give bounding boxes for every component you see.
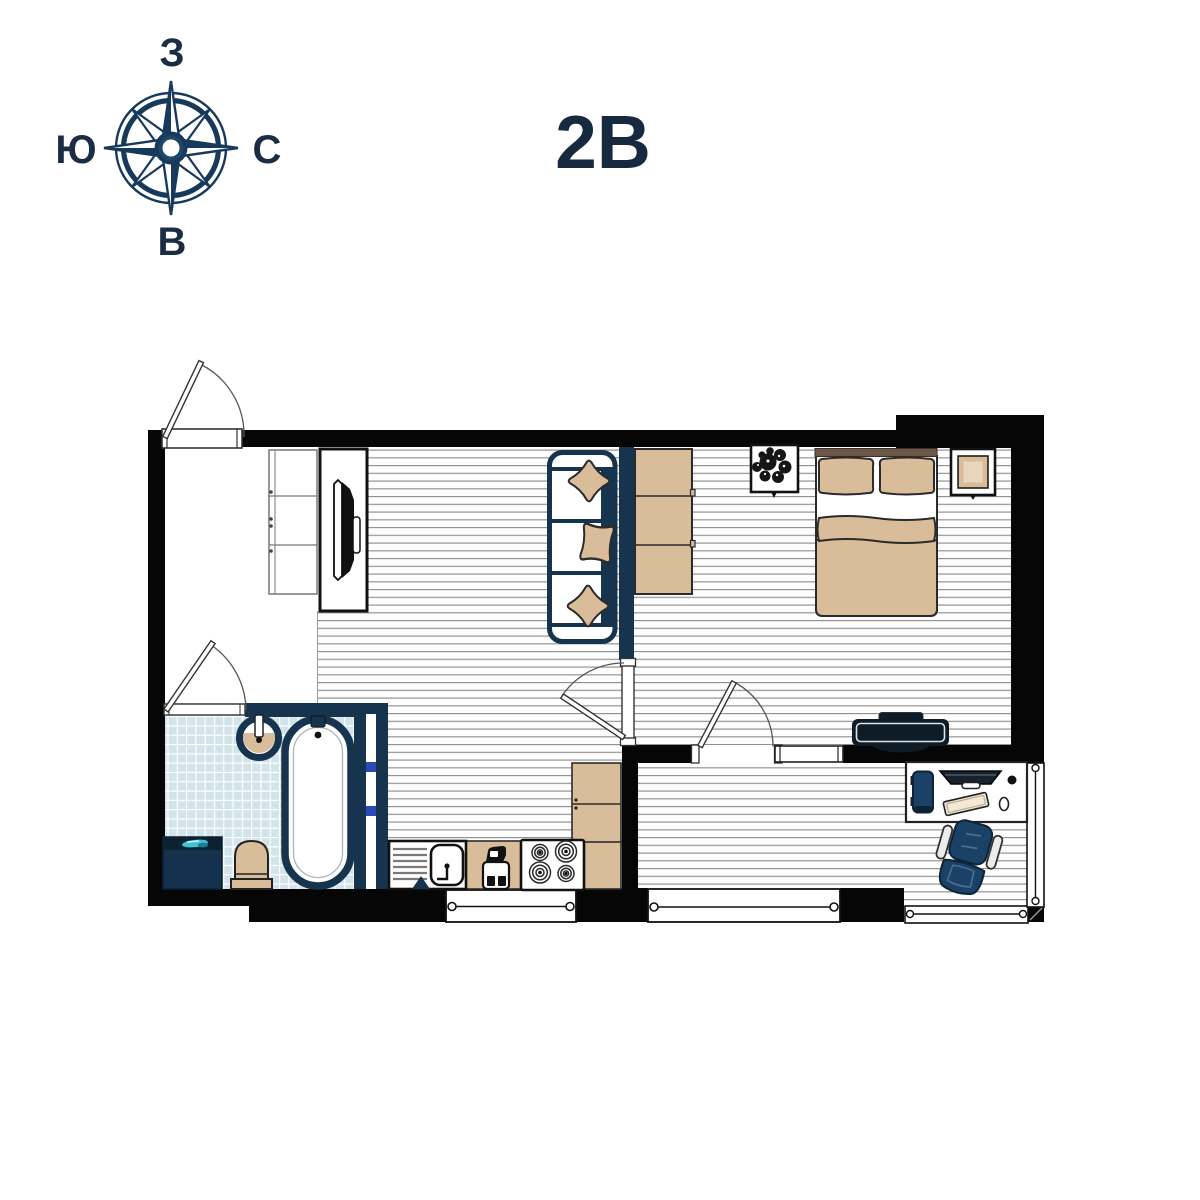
svg-text:Ю: Ю <box>55 128 96 172</box>
svg-text:З: З <box>159 31 184 75</box>
svg-text:2В: 2В <box>555 100 651 184</box>
svg-text:С: С <box>253 128 282 172</box>
svg-text:В: В <box>158 220 187 264</box>
